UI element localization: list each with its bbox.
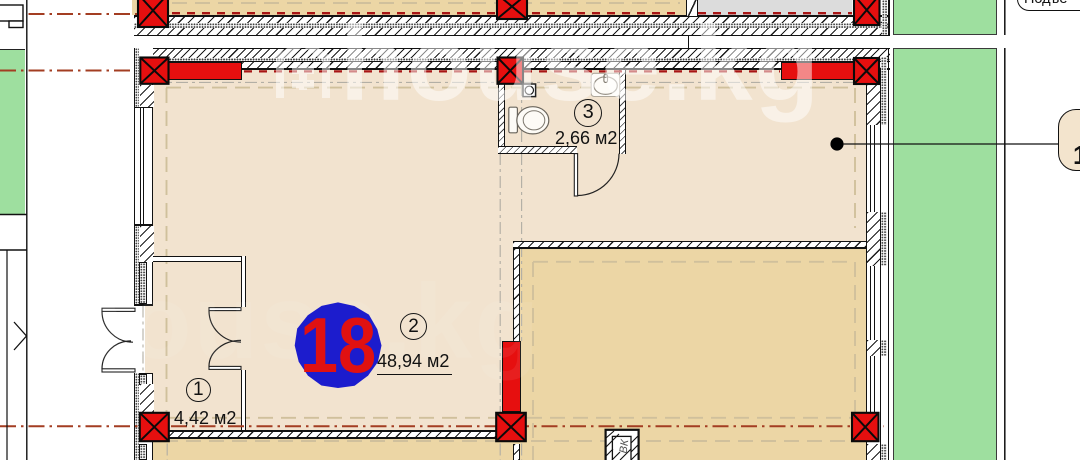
svg-text:ВК: ВК — [618, 438, 632, 454]
